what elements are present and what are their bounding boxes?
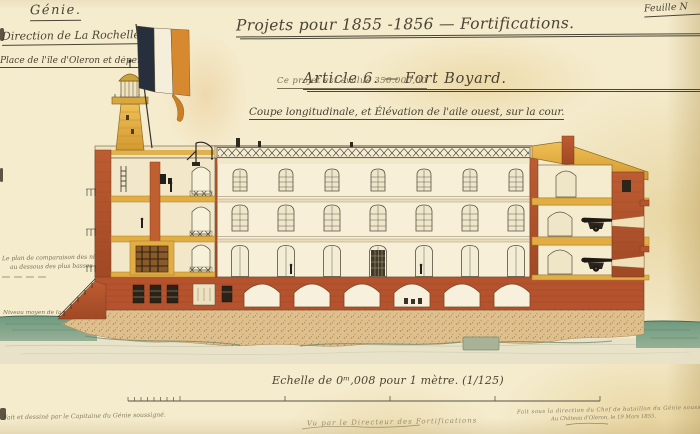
sea-right bbox=[636, 321, 700, 348]
plan-sheet: Génie. Direction de La Rochelle. Place d… bbox=[0, 0, 700, 434]
tricolor-flag bbox=[136, 24, 190, 148]
scale-bar bbox=[128, 396, 600, 401]
cut-wall-right bbox=[530, 158, 538, 277]
left-revetment-slope bbox=[58, 279, 106, 319]
fort-drawing bbox=[0, 0, 700, 434]
